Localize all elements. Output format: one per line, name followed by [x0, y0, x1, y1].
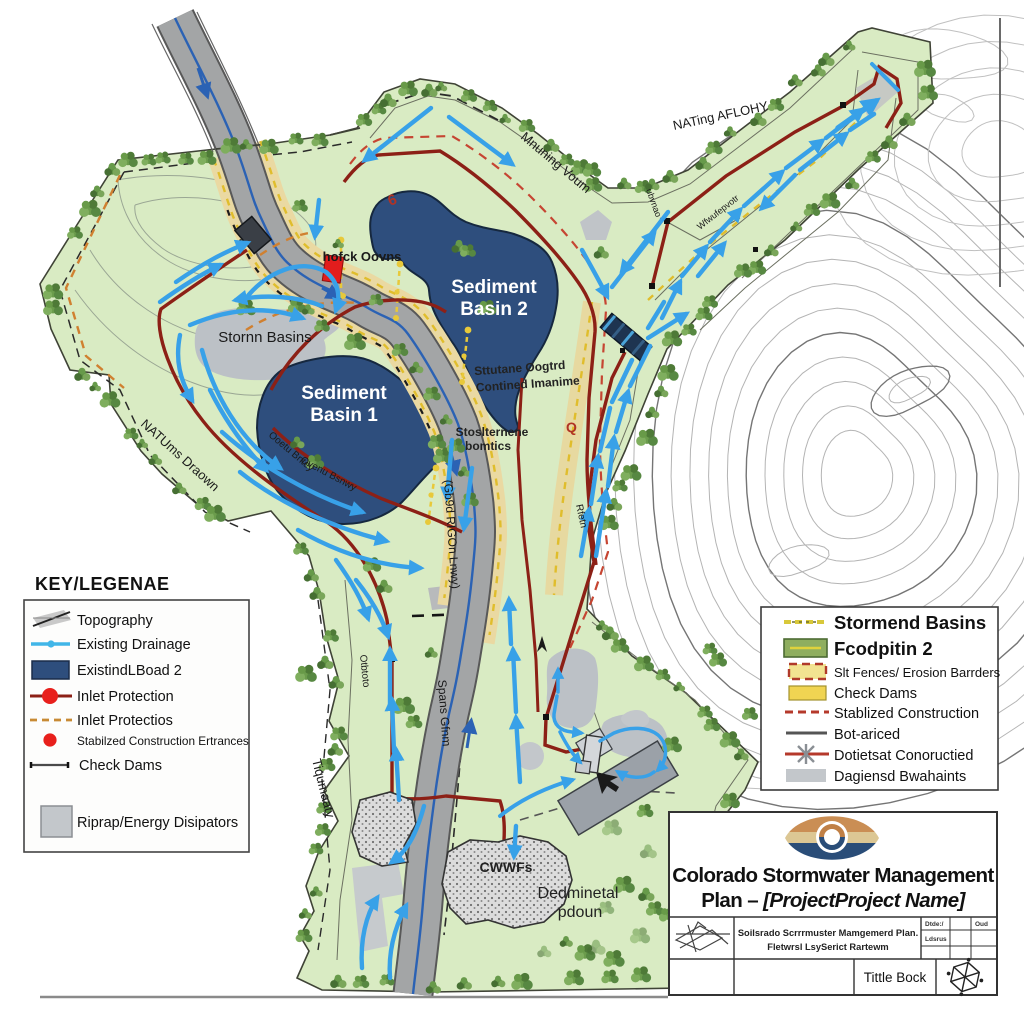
svg-text:Colorado Stormwater Management: Colorado Stormwater Management [672, 864, 994, 887]
svg-text:Fcodpitin 2: Fcodpitin 2 [834, 638, 933, 659]
svg-text:ExistindLBoad 2: ExistindLBoad 2 [77, 663, 182, 679]
svg-text:Check Dams: Check Dams [834, 686, 917, 702]
svg-text:Existing Drainage: Existing Drainage [77, 637, 191, 653]
svg-text:Sediment: Sediment [451, 277, 537, 298]
svg-text:Stablized Construction: Stablized Construction [834, 706, 979, 722]
svg-text:KEY/LEGENAE: KEY/LEGENAE [35, 574, 170, 594]
svg-text:Inlet Protectios: Inlet Protectios [77, 713, 173, 729]
svg-text:Stornn Basins: Stornn Basins [218, 329, 311, 346]
svg-text:Ldsrus: Ldsrus [925, 936, 947, 943]
svg-text:Tittle Bock: Tittle Bock [864, 970, 927, 985]
svg-text:Slt Fences/ Erosion Barrders: Slt Fences/ Erosion Barrders [834, 665, 1001, 680]
svg-text:Fletwrsl LsySerict Rartewm: Fletwrsl LsySerict Rartewm [767, 942, 888, 952]
svg-text:Check Dams: Check Dams [79, 758, 162, 774]
svg-text:Bot-ariced: Bot-ariced [834, 727, 900, 743]
svg-text:Stormend Basins: Stormend Basins [834, 612, 986, 633]
svg-text:Sediment: Sediment [301, 383, 387, 404]
svg-text:Basin 2: Basin 2 [460, 299, 528, 320]
svg-text:Stabilzed Construction Ertranc: Stabilzed Construction Ertrances [77, 734, 249, 748]
svg-text:Dagiensd Bwahaints: Dagiensd Bwahaints [834, 769, 966, 785]
svg-text:Plan – [ProjectProject Name]: Plan – [ProjectProject Name] [701, 889, 966, 912]
svg-text:Dtde:/: Dtde:/ [925, 921, 944, 928]
svg-text:CWWFs: CWWFs [480, 859, 533, 875]
svg-text:Riprap/Energy Disipators: Riprap/Energy Disipators [77, 815, 238, 831]
svg-text:bomtics: bomtics [465, 439, 511, 453]
svg-text:Dotietsat Conoructied: Dotietsat Conoructied [834, 748, 973, 764]
svg-text:Inlet Protection: Inlet Protection [77, 689, 174, 705]
svg-text:pdoun: pdoun [558, 904, 603, 921]
svg-text:Q: Q [566, 419, 577, 435]
svg-text:Stoslternene: Stoslternene [456, 425, 529, 439]
svg-text:Basin 1: Basin 1 [310, 405, 378, 426]
svg-text:Topography: Topography [77, 613, 154, 629]
svg-text:Dedminetal: Dedminetal [538, 885, 619, 902]
svg-text:hofck Oovns: hofck Oovns [323, 249, 402, 264]
svg-text:Soilsrado Scrrrmuster Mamgemer: Soilsrado Scrrrmuster Mamgemerd Plan. [738, 928, 918, 938]
svg-text:Oud: Oud [975, 921, 988, 928]
